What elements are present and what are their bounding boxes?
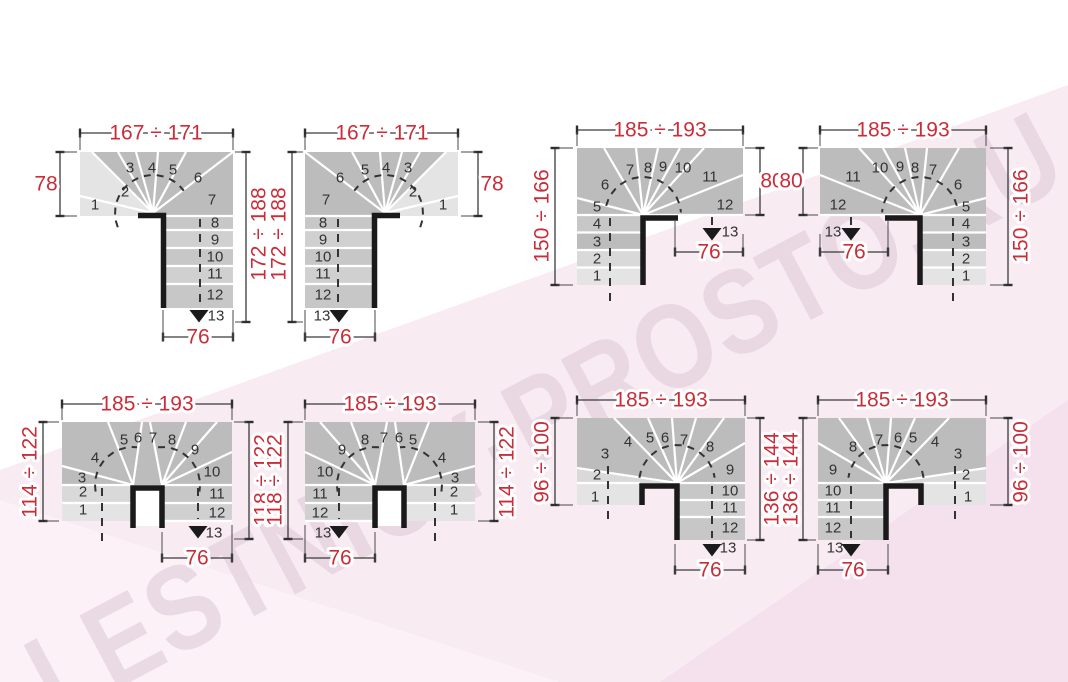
stair-tread-area [62,485,133,503]
step-number-label: 2 [962,467,970,484]
step-number-label: 4 [91,450,99,467]
step-number-label: 2 [409,184,417,201]
step-number-label: 10 [872,160,889,177]
step-number-label: 7 [626,162,634,179]
dimension-label-left: 80 [779,170,802,193]
step-number-label: 9 [896,159,904,176]
dimension-label-top: 185 ÷ 193 [343,393,436,416]
dimension-label-left: 96 ÷ 100 [531,421,554,503]
walk-line-dash [714,473,715,478]
walk-line-dash [441,485,442,492]
step-number-label: 10 [722,483,739,500]
step-number-label: 5 [409,432,417,449]
step-number-label: 12 [722,520,739,537]
step-number-label: 7 [149,430,157,447]
step-number-label: 7 [208,192,216,209]
dimension-label-top: 185 ÷ 193 [856,119,949,142]
step-number-label: 7 [380,430,388,447]
step-number-label: 6 [336,170,344,187]
step-number-label: 12 [717,197,734,214]
dimension-label-right: 150 ÷ 166 [1010,169,1033,262]
step-number-label: 12 [315,287,332,304]
step-number-label: 5 [361,162,369,179]
stair-tread-area [305,230,375,248]
dimension-label-top: 185 ÷ 193 [855,389,948,412]
dimension-label-left: 136 ÷ 144 [780,432,803,526]
step-number-label: 9 [338,442,346,459]
step-number-label: 6 [601,177,609,194]
step-number-label: 13 [208,308,225,325]
dimension-label-left: 118 ÷ 122 [264,434,287,526]
step-number-label: 8 [168,432,176,449]
step-number-label: 2 [593,251,601,268]
step-number-label: 13 [827,540,844,557]
step-number-label: 3 [126,160,134,177]
step-number-label: 7 [322,192,330,209]
step-number-label: 4 [962,216,970,233]
walk-line-dash [911,177,918,178]
step-number-label: 6 [194,170,202,187]
step-number-label: 8 [644,160,652,177]
step-number-label: 2 [593,467,601,484]
dimension-label-right: 78 [480,173,503,196]
step-number-label: 10 [317,464,334,481]
step-number-label: 6 [395,430,403,447]
dimension-label-top: 167 ÷ 171 [335,122,428,145]
step-number-label: 8 [911,160,919,177]
dimension-label-top: 185 ÷ 193 [614,389,707,412]
dimension-label-bottom: 76 [328,547,351,570]
step-number-label: 3 [451,470,459,487]
step-number-label: 11 [312,486,328,503]
step-number-label: 3 [78,470,86,487]
step-number-label: 10 [675,160,692,177]
step-number-label: 3 [962,234,970,251]
stair-tread-area [378,485,401,526]
stair-tread-area [62,503,133,521]
step-number-label: 9 [829,462,837,479]
step-number-label: 1 [91,197,99,214]
step-number-label: 1 [79,502,87,519]
dimension-label-top: 185 ÷ 193 [613,119,706,142]
step-number-label: 10 [207,249,224,266]
dimension-label-bottom: 76 [186,326,209,349]
step-number-label: 12 [825,520,842,537]
stair-tread-area [404,485,475,503]
dimension-label-right: 96 ÷ 100 [1010,421,1033,503]
step-number-label: 4 [624,434,632,451]
dimension-label-bottom: 76 [328,326,351,349]
step-number-label: 7 [680,432,688,449]
dimension-label-top: 167 ÷ 171 [109,122,202,145]
step-number-label: 3 [954,446,962,463]
step-number-label: 9 [191,442,199,459]
step-number-label: 5 [120,432,128,449]
dimension-label-bottom: 76 [185,547,208,570]
walk-line-dash [157,175,164,176]
step-number-label: 8 [706,439,714,456]
step-number-label: 11 [207,266,223,283]
dimension-label-left: 114 ÷ 122 [19,426,42,518]
step-number-label: 2 [962,251,970,268]
walk-line-dash [199,486,200,491]
step-number-label: 5 [169,162,177,179]
step-number-label: 3 [601,446,609,463]
step-number-label: 13 [825,224,842,241]
step-number-label: 11 [315,266,331,283]
step-number-label: 6 [661,430,669,447]
step-number-label: 8 [361,432,369,449]
dimension-label-left: 78 [34,173,57,196]
stair-tread-area [136,485,159,526]
step-number-label: 9 [659,159,667,176]
step-number-label: 9 [319,232,327,249]
dimension-label-left: 150 ÷ 166 [531,169,554,262]
step-number-label: 5 [593,199,601,216]
step-number-label: 4 [438,450,446,467]
step-number-label: 8 [211,215,219,232]
step-number-label: 5 [646,430,654,447]
step-number-label: 5 [962,199,970,216]
step-number-label: 11 [702,169,718,186]
step-number-label: 12 [209,505,226,522]
step-number-label: 3 [593,234,601,251]
dimension-label-left: 172 ÷ 188 [268,187,291,280]
step-number-label: 7 [929,162,937,179]
step-number-label: 4 [148,160,156,177]
step-number-label: 6 [894,430,902,447]
step-number-label: 13 [206,525,223,542]
step-number-label: 7 [875,432,883,449]
step-number-label: 4 [593,216,601,233]
stair-diagrams-sheet: LESTNICY-PROSTO.RU 167 ÷ 17178172 ÷ 1887… [0,0,1068,682]
step-number-label: 3 [404,160,412,177]
step-number-label: 4 [382,160,390,177]
step-number-label: 1 [591,489,599,506]
step-number-label: 9 [211,232,219,249]
step-number-label: 13 [315,525,332,542]
step-number-label: 6 [954,177,962,194]
walk-line-dash [95,485,96,492]
step-number-label: 10 [204,464,221,481]
step-number-label: 5 [909,430,917,447]
step-number-label: 8 [319,215,327,232]
walk-line-dash [374,175,381,176]
step-number-label: 11 [722,500,738,517]
dimension-label-bottom: 76 [842,241,865,264]
step-number-label: 12 [207,287,224,304]
step-number-label: 11 [825,500,841,517]
dimension-label-right: 114 ÷ 122 [496,426,519,518]
step-number-label: 9 [726,462,734,479]
step-number-label: 2 [121,184,129,201]
step-number-label: 1 [439,197,447,214]
step-number-label: 11 [845,169,861,186]
dimension-label-bottom: 76 [697,241,720,264]
dimension-label-top: 185 ÷ 193 [100,393,193,416]
step-number-label: 13 [722,224,739,241]
diagram-canvas: LESTNICY-PROSTO.RU 167 ÷ 17178172 ÷ 1887… [0,0,1068,682]
step-number-label: 4 [931,434,939,451]
walk-line-dash [848,473,849,478]
step-number-label: 13 [314,308,331,325]
walk-line-dash [645,177,652,178]
dimension-label-bottom: 76 [698,559,721,582]
step-number-label: 1 [593,268,601,285]
step-number-label: 6 [134,430,142,447]
step-number-label: 1 [964,489,972,506]
step-number-label: 10 [825,483,842,500]
step-number-label: 1 [450,502,458,519]
step-number-label: 8 [849,439,857,456]
stair-tread-area [404,503,475,521]
step-number-label: 10 [315,249,332,266]
step-number-label: 12 [312,505,329,522]
step-number-label: 12 [830,197,847,214]
stair-tread-area [163,230,233,248]
walk-line-dash [337,486,338,491]
step-number-label: 11 [209,486,225,503]
step-number-label: 1 [962,268,970,285]
dimension-label-bottom: 76 [841,559,864,582]
step-number-label: 13 [720,540,737,557]
